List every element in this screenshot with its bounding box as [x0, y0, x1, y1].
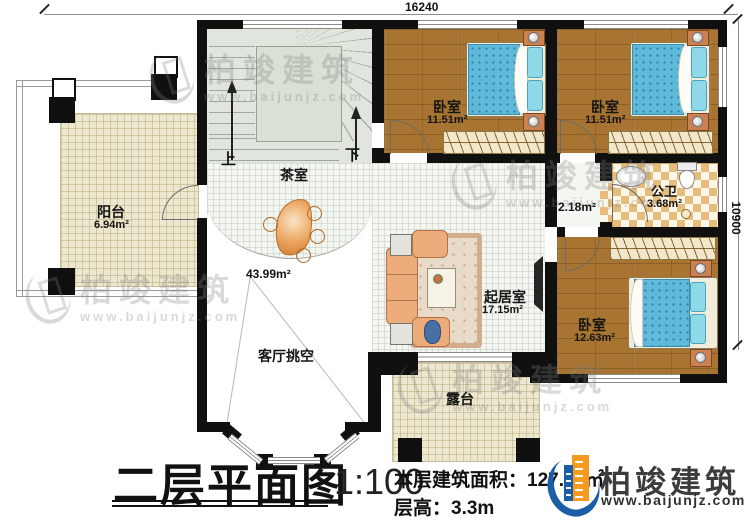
- window-stairwell: [243, 20, 342, 29]
- terrace-post: [516, 438, 540, 462]
- stair-down-label: 下: [345, 148, 360, 163]
- room-label-balcony: 阳台: [97, 205, 125, 219]
- wardrobe: [443, 131, 545, 154]
- watermark-brand: 柏竣建筑: [204, 54, 364, 86]
- floor-height-label: 层高：: [394, 498, 451, 519]
- floor-plan: 16240 10900: [0, 0, 750, 524]
- room-label-tea-room: 茶室: [280, 168, 308, 182]
- wardrobe: [608, 131, 713, 154]
- bed-mattress: [632, 44, 684, 115]
- armchair: [412, 230, 448, 258]
- door-opening: [390, 153, 427, 163]
- nightstand-lamp: [692, 116, 703, 127]
- wardrobe: [610, 237, 716, 260]
- room-label-bedroom2: 卧室: [591, 100, 619, 114]
- watermark-url: www.baijunjz.com: [80, 310, 240, 323]
- bed-pillow: [690, 314, 706, 344]
- wall-stair-bedroom1: [372, 20, 384, 123]
- window-living-terrace: [418, 352, 512, 362]
- stair-up-label: 上: [221, 152, 236, 167]
- floor-height-text: 层高：3.3m: [394, 493, 494, 520]
- tea-stool: [296, 248, 311, 263]
- balcony-post: [49, 97, 75, 123]
- table-flowers: [433, 274, 443, 284]
- bed-pillow: [691, 80, 707, 111]
- room-area-bedroom1: 11.51m²: [427, 115, 467, 126]
- watermark-logo-icon: [143, 46, 201, 109]
- person-figure: [424, 320, 441, 344]
- bed-mattress: [468, 44, 520, 115]
- room-label-bathroom: 公卫: [651, 185, 677, 198]
- bed-blanket-fold: [514, 44, 528, 115]
- nightstand-lamp: [695, 352, 706, 363]
- tea-stool: [307, 206, 322, 221]
- tea-stool: [263, 217, 278, 232]
- floor-drain: [681, 209, 691, 219]
- watermark-brand: 柏竣建筑: [506, 160, 666, 192]
- top-dimension-value: 16240: [405, 1, 438, 13]
- tv: [534, 256, 543, 312]
- side-table: [390, 323, 413, 345]
- window-bedroom2: [584, 20, 688, 29]
- watermark-brand: 柏竣建筑: [452, 364, 612, 396]
- room-area-bedroom3: 12.63m²: [574, 333, 615, 344]
- logo-building-icon: [572, 455, 589, 501]
- wall-void-right: [368, 352, 381, 432]
- stair-down-arrow-head: [351, 106, 361, 119]
- bed-blanket-fold: [630, 279, 643, 347]
- logo-url: www.baijunjz.com: [601, 492, 746, 508]
- room-area-balcony: 6.94m²: [94, 220, 129, 231]
- bed-pillow: [527, 80, 543, 111]
- bed-pillow: [690, 282, 706, 312]
- room-area-bathroom: 3.68m²: [647, 199, 682, 210]
- room-label-bedroom3: 卧室: [578, 318, 606, 332]
- room-area-living-room: 17.15m²: [482, 305, 523, 316]
- balcony-railing-top: [16, 80, 156, 87]
- room-label-terrace: 露台: [446, 392, 474, 406]
- room-label-living-room: 起居室: [484, 290, 526, 304]
- nightstand-lamp: [528, 116, 539, 127]
- bed-pillow: [527, 47, 543, 78]
- watermark-url: www.baijunjz.com: [204, 90, 364, 103]
- terrace-post: [398, 438, 422, 462]
- dimension-tick: [723, 4, 734, 15]
- sofa: [386, 247, 418, 325]
- floor-area-label: 本层建筑面积：: [394, 470, 527, 491]
- room-area-void: 43.99m²: [246, 268, 291, 280]
- title-underline: [112, 500, 328, 502]
- window-bedroom1: [418, 20, 517, 29]
- dimension-tick: [39, 4, 50, 15]
- nightstand-lamp: [692, 32, 703, 43]
- tea-stool: [310, 229, 325, 244]
- watermark: 柏竣建筑 www.baijunjz.com: [26, 272, 240, 324]
- room-area-hallway: 2.18m²: [558, 201, 596, 213]
- title-underline: [112, 505, 328, 507]
- wall-left-lower: [197, 218, 207, 432]
- window-bedroom2-right: [718, 47, 727, 107]
- bed-blanket-fold: [678, 44, 692, 115]
- door-opening: [565, 227, 598, 237]
- floor-height-value: 3.3m: [451, 498, 494, 519]
- window-bathroom: [718, 177, 727, 212]
- logo-building-icon: [564, 465, 573, 501]
- nightstand-lamp: [528, 32, 539, 43]
- bed-pillow: [691, 47, 707, 78]
- watermark-logo-icon: [19, 266, 77, 329]
- watermark-logo-icon: [391, 356, 449, 419]
- room-label-void: 客厅挑空: [258, 349, 314, 363]
- room-area-bedroom2: 11.51m²: [585, 115, 625, 126]
- top-dimension-line: [44, 14, 738, 15]
- room-label-bedroom1: 卧室: [433, 100, 461, 114]
- side-table: [390, 234, 412, 256]
- watermark: 柏竣建筑 www.baijunjz.com: [398, 362, 612, 414]
- nightstand-lamp: [695, 263, 706, 274]
- watermark-url: www.baijunjz.com: [452, 400, 612, 413]
- watermark: 柏竣建筑 www.baijunjz.com: [150, 52, 364, 104]
- watermark-brand: 柏竣建筑: [80, 274, 240, 306]
- coffee-table: [427, 268, 456, 308]
- right-dimension-line: [738, 20, 739, 350]
- balcony-railing-left: [16, 80, 23, 296]
- right-dimension-value: 10900: [730, 186, 742, 250]
- watermark-logo-icon: [445, 152, 503, 215]
